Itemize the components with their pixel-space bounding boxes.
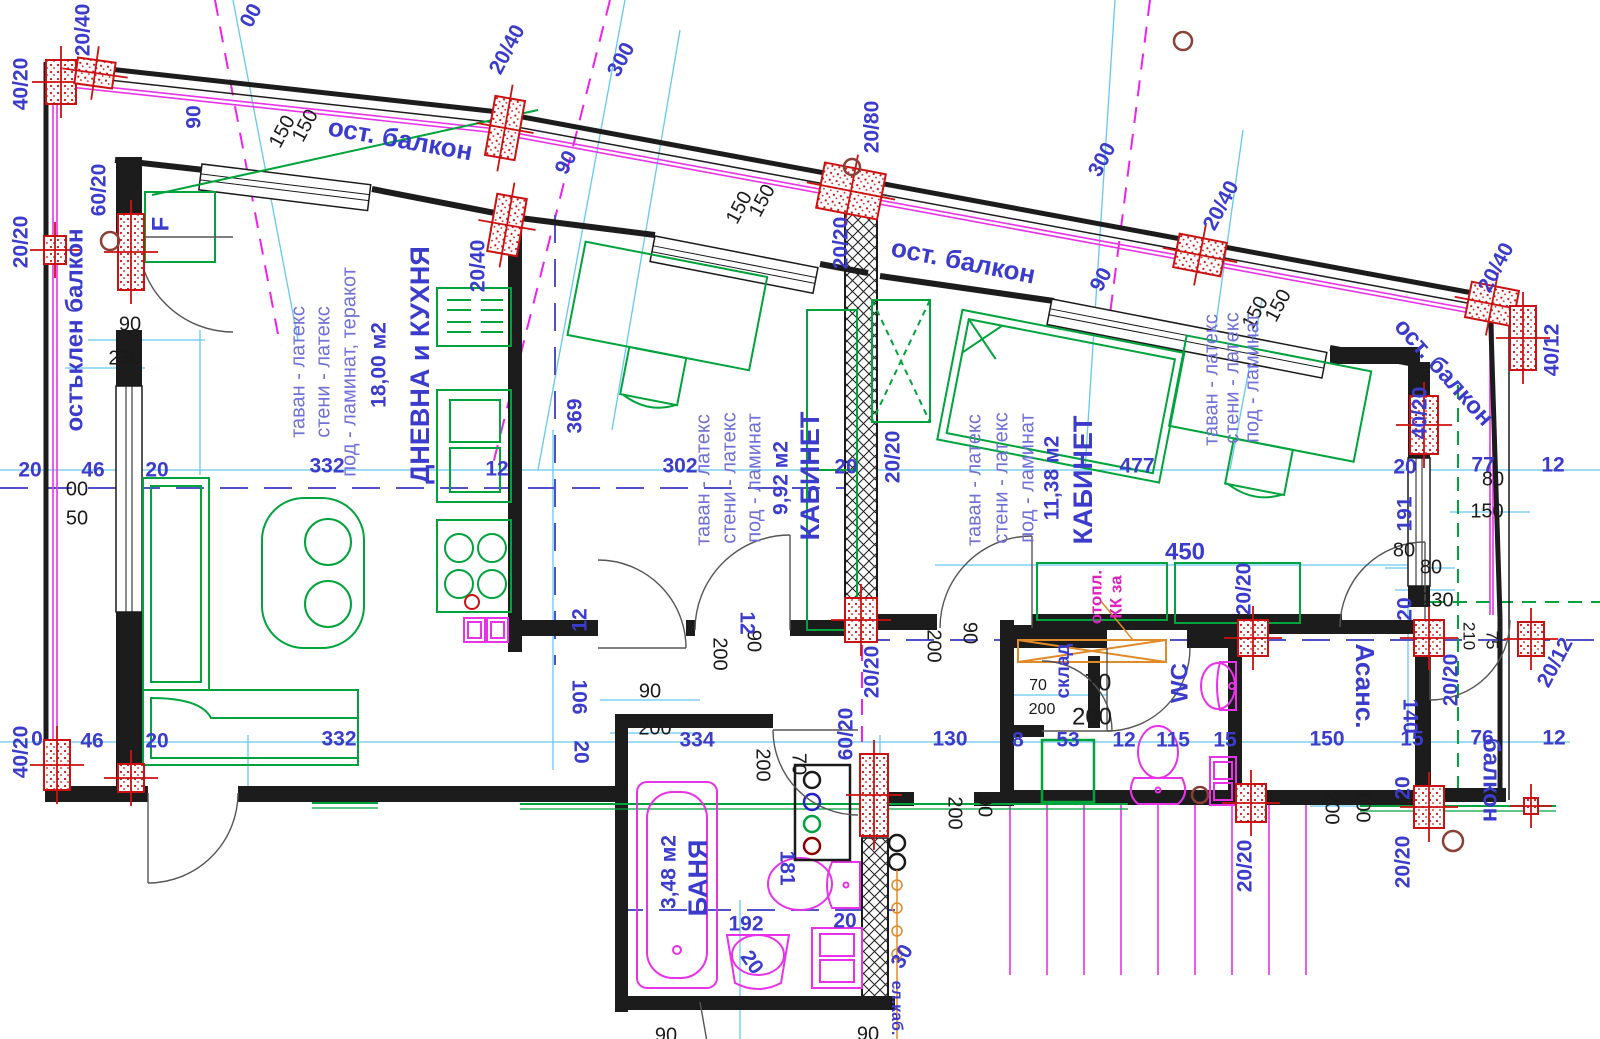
plan-label: 12: [485, 458, 508, 481]
plan-label: 50: [66, 507, 88, 529]
plan-label: под - ламинат: [743, 413, 765, 543]
plan-label: 200: [752, 748, 774, 781]
plan-label: 40/20: [10, 58, 33, 111]
plan-label: 230: [1420, 589, 1453, 611]
plan-label: F: [147, 217, 174, 232]
plan-label: 12: [1542, 727, 1565, 750]
plan-label: остъклен балкон: [61, 229, 88, 432]
plan-label: 334: [679, 729, 714, 752]
plan-label: таван - латекс: [692, 414, 714, 546]
wall-segment: [875, 614, 937, 630]
plan-label: 90: [959, 622, 981, 644]
plan-label: 200: [923, 629, 945, 662]
plan-label: 80: [1420, 556, 1442, 578]
plan-label: 90: [655, 1024, 677, 1039]
plan-label: 90: [639, 680, 661, 702]
plan-label: 20/20: [1392, 836, 1415, 889]
plan-label: 200: [1321, 791, 1343, 824]
wall-segment: [238, 786, 620, 802]
plan-label: 70: [788, 753, 810, 775]
plan-label: 20/20: [1440, 654, 1463, 707]
wall-segment: [686, 620, 695, 636]
plan-label: 12: [1541, 454, 1564, 477]
plan-label: ДНЕВНА и КУХНЯ: [405, 246, 435, 484]
plan-label: 450: [1165, 538, 1205, 565]
floor-plan-svg: 20/400040/2060/2020/20остъклен балкон90о…: [0, 0, 1600, 1039]
plan-label: 11,38 м2: [1041, 436, 1064, 520]
plan-label: стени - латекс: [312, 306, 334, 437]
plan-label: 200: [638, 717, 671, 739]
plan-label: 369: [564, 398, 587, 433]
plan-label: 192: [728, 913, 763, 936]
plan-label: 18,00 м2: [368, 322, 391, 408]
plan-label: 90: [119, 313, 141, 335]
plan-label: 20: [1394, 597, 1417, 620]
plan-label: 8: [1012, 729, 1024, 752]
plan-label: 20/20: [861, 646, 884, 699]
window: [116, 386, 142, 612]
plan-label: под - ламинат: [1016, 413, 1038, 543]
plan-label: 3,48 м2: [658, 835, 681, 909]
plan-label: 332: [321, 728, 356, 751]
plan-label: 20: [145, 459, 168, 482]
plan-label: 40/20: [1409, 387, 1432, 440]
plan-label: 477: [1119, 455, 1154, 478]
plan-label: 40/20: [10, 726, 33, 779]
shear-wall-hatch: [862, 838, 888, 1008]
plan-label: 90: [974, 795, 996, 817]
plan-label: 80: [1393, 539, 1415, 561]
plan-label: 70: [1085, 669, 1112, 696]
plan-label: 46: [80, 730, 103, 753]
plan-label: 12: [569, 608, 592, 631]
plan-label: 200: [1029, 701, 1056, 718]
plan-label: 20/20: [10, 216, 33, 269]
plan-label: 106: [567, 679, 590, 714]
plan-label: БАНЯ: [683, 840, 713, 917]
plan-label: 12: [735, 611, 758, 634]
plan-label: 00: [66, 478, 88, 500]
plan-label: 150: [1470, 500, 1503, 522]
plan-label: 60/20: [88, 164, 111, 217]
plan-label: 332: [309, 455, 344, 478]
plan-label: 60/20: [835, 708, 858, 761]
floor-plan-page: 20/400040/2060/2020/20остъклен балкон90о…: [0, 0, 1600, 1039]
plan-label: 40/12: [1541, 324, 1564, 377]
plan-label: 20: [833, 910, 856, 933]
plan-label: 181: [775, 850, 798, 885]
plan-label: 140: [1398, 698, 1421, 733]
plan-label: 9,92 м2: [770, 441, 793, 515]
plan-label: 20/40: [72, 4, 95, 57]
plan-label: 20: [1392, 776, 1415, 799]
plan-label: 210: [1460, 622, 1479, 650]
plan-label: 20/20: [1233, 563, 1256, 616]
plan-label: 20: [18, 459, 41, 482]
plan-label: WC: [1166, 663, 1193, 703]
plan-label: КАБИНЕТ: [795, 411, 825, 540]
plan-label: 200: [1072, 703, 1112, 730]
plan-label: 20: [834, 456, 857, 479]
plan-label: ел.каб.: [888, 981, 905, 1036]
plan-label: 20: [569, 740, 592, 763]
plan-label: 15: [1213, 729, 1237, 752]
plan-label: 12: [1112, 729, 1135, 752]
plan-label: 70: [1029, 677, 1047, 694]
plan-label: 20: [145, 730, 168, 753]
plan-label: под - ламинат, теракот: [338, 267, 360, 477]
plan-label: 150: [1309, 728, 1344, 751]
plan-label: таван - латекс: [1200, 314, 1222, 446]
plan-label: склад: [1053, 643, 1074, 698]
wall-segment: [615, 714, 628, 1012]
plan-label: КК за: [1106, 575, 1125, 619]
plan-label: 90: [183, 105, 206, 128]
plan-label: 20/80: [861, 101, 884, 154]
plan-label: стени - латекс: [1221, 312, 1243, 443]
plan-label: 191: [1394, 496, 1417, 531]
plan-label: 0: [31, 728, 43, 751]
plan-label: 20/40: [467, 240, 490, 293]
wall-segment: [615, 996, 895, 1010]
plan-label: балкон: [1478, 738, 1505, 822]
plan-label: таван - латекс: [287, 306, 309, 438]
plan-label: КАБИНЕТ: [1068, 415, 1098, 544]
plan-label: Асанс.: [1350, 643, 1380, 728]
plan-label: 20/20: [1234, 840, 1257, 893]
plan-label: 115: [1156, 729, 1190, 752]
plan-label: 53: [1056, 729, 1079, 752]
plan-label: 230: [108, 347, 141, 369]
plan-label: 130: [932, 728, 967, 751]
plan-label: стени - латекс: [718, 412, 740, 543]
plan-label: 200: [709, 637, 731, 670]
plan-label: 20/20: [882, 431, 905, 484]
plan-label: таван - латекс: [963, 414, 985, 546]
plan-label: 200: [944, 796, 966, 829]
plan-label: отопл.: [1086, 570, 1105, 624]
plan-label: 100: [1352, 789, 1374, 822]
plan-label: стени - латекс: [990, 412, 1012, 543]
plan-label: 80: [1482, 468, 1504, 490]
plan-label: 20/20: [830, 217, 853, 270]
plan-label: 20: [1393, 456, 1416, 479]
plan-label: под - ламинат: [1241, 313, 1263, 443]
plan-label: 75: [1483, 631, 1502, 650]
plan-label: 90: [857, 1023, 879, 1039]
